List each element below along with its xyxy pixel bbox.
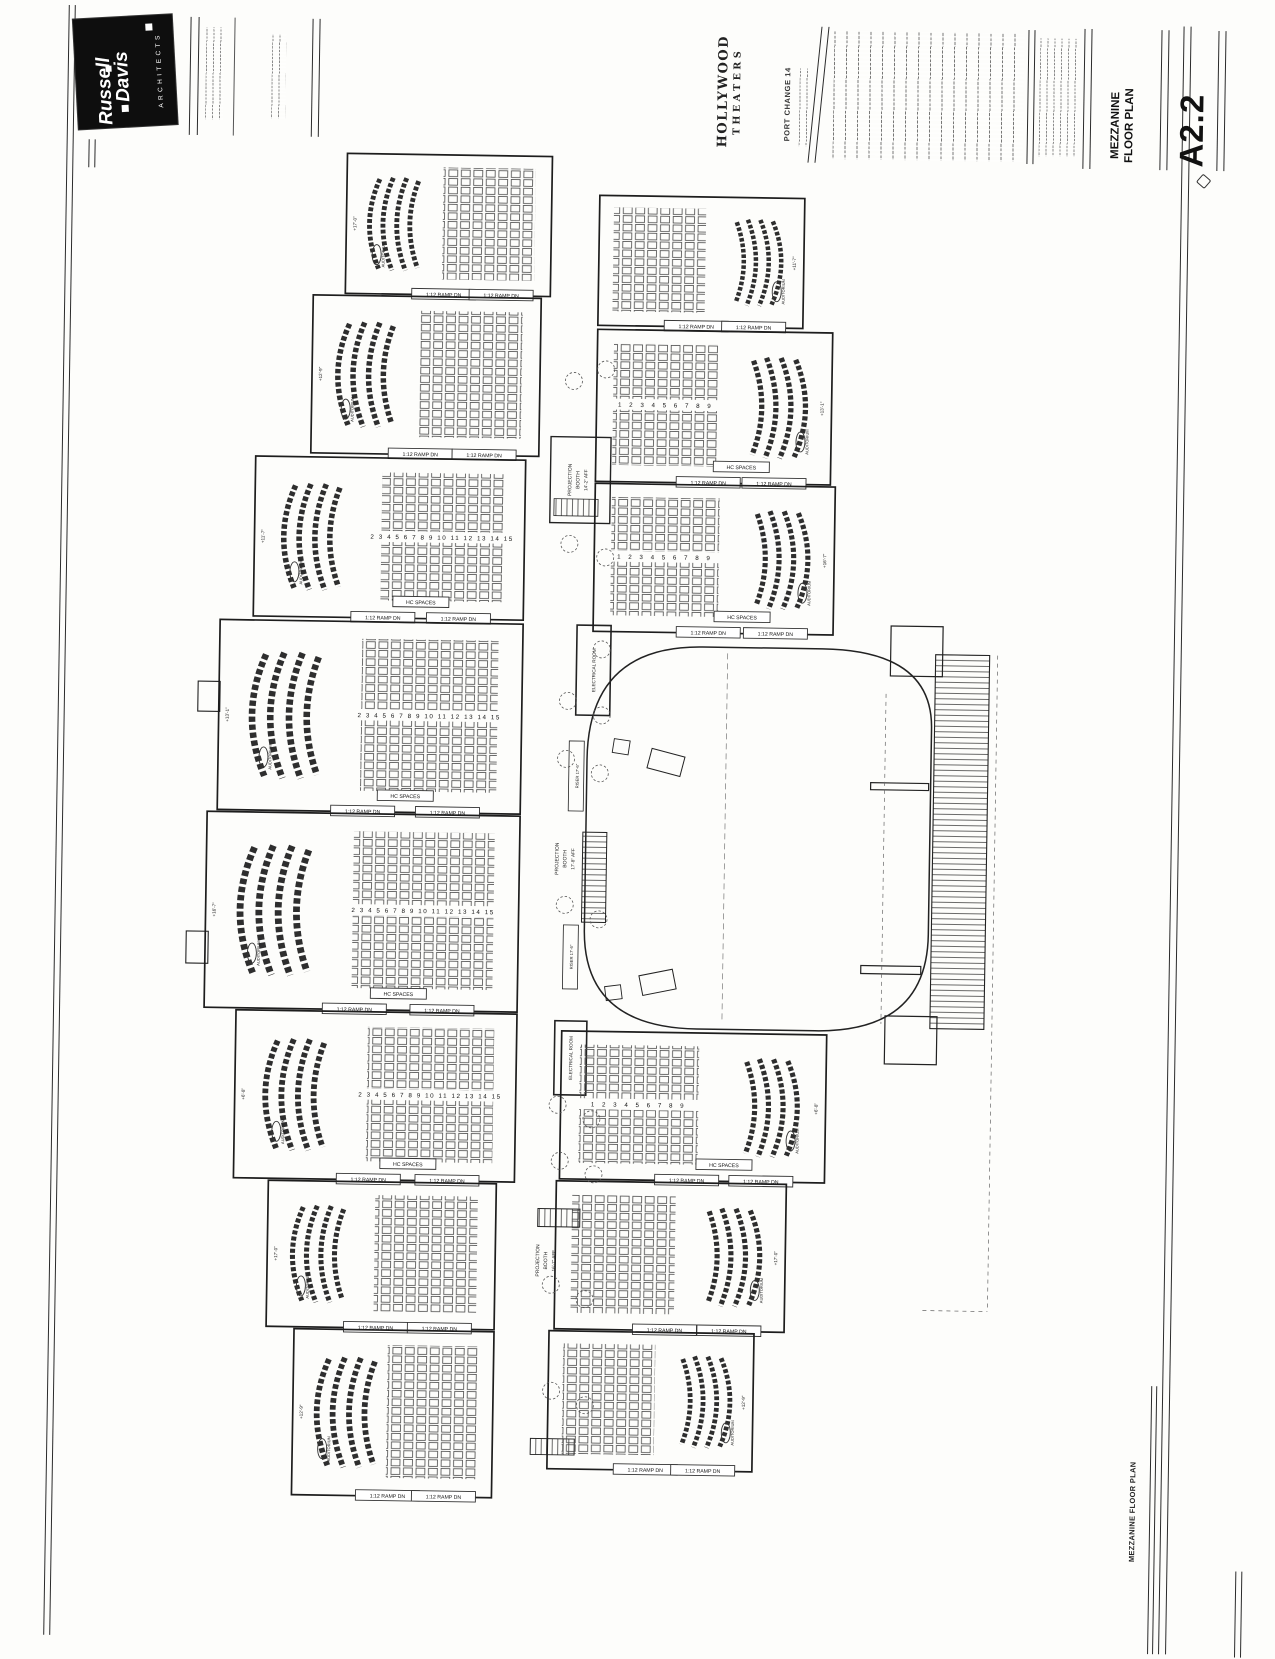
edge-above-line xyxy=(922,1311,987,1312)
drawing-sheet: Russell Davis ARCHITECTS HOLLYWOOD THEAT… xyxy=(0,0,1275,1659)
seat-rows-straight xyxy=(418,311,523,439)
ramp-label: 1:12 RAMP DN xyxy=(655,1174,719,1186)
ramp-label-label: 1:12 RAMP DN xyxy=(758,631,794,638)
ramp-label-label: 1:12 RAMP DN xyxy=(426,1494,462,1501)
elevation-marker: +11'-7" xyxy=(260,529,265,543)
hc-spaces-label-label: HC SPACES xyxy=(393,1162,423,1168)
auditorium-block: 1 2 3 4 5 6 7 8 9AUDITORIUM+6'-8" xyxy=(559,1031,826,1183)
projector-port xyxy=(598,361,615,378)
row-numbers: 1 2 3 4 5 6 7 8 9 xyxy=(618,402,714,411)
booth-label: PROJECTION xyxy=(554,842,561,875)
auditorium-tag-label: AUDITORIUM xyxy=(280,1119,285,1144)
seat-rows-curved xyxy=(264,1039,324,1151)
seat-rows-curved xyxy=(752,358,806,459)
hc-spaces-label-label: HC SPACES xyxy=(390,794,420,800)
side-room xyxy=(884,1016,937,1065)
seat-rows-curved xyxy=(239,845,309,975)
elevation-marker: +12'-9" xyxy=(741,1395,746,1410)
ramp-label: 1:12 RAMP DN xyxy=(671,1465,735,1477)
auditorium-tag-label: AUDITORIUM xyxy=(349,397,354,422)
seat-rows-curved xyxy=(745,1059,798,1157)
elevation-marker: +13'-1" xyxy=(225,707,230,722)
ramp-label: 1:12 RAMP DN xyxy=(676,627,740,639)
floor-plan: PROJECTION BOOTH 14'-2" AFF ELECTRICAL R… xyxy=(0,0,1275,1659)
elevation-marker: +16'-7" xyxy=(212,902,217,917)
auditoriums: AUDITORIUM+17'-0"1:12 RAMP DN1:12 RAMP D… xyxy=(196,151,840,1507)
lobby-kiosk xyxy=(639,969,676,995)
projector-port xyxy=(549,1096,566,1113)
auditorium-tag-label: AUDITORIUM xyxy=(806,581,811,606)
ramp-label-label: 1:12 RAMP DN xyxy=(678,324,714,331)
hc-spaces-label-label: HC SPACES xyxy=(384,992,414,998)
ramp-label-label: 1:12 RAMP DN xyxy=(628,1468,664,1475)
ramp-label-label: 1:12 RAMP DN xyxy=(441,616,477,623)
ramp-label: 1:12 RAMP DN xyxy=(743,628,807,640)
hc-spaces-label: HC SPACES xyxy=(714,611,770,622)
projector-port xyxy=(557,750,574,767)
booth-label: BOOTH xyxy=(575,471,581,489)
auditorium-tag-label: AUDITORIUM xyxy=(794,1128,799,1153)
seat-rows-curved xyxy=(681,1356,730,1448)
booth-elevation: 17'-8" AFF xyxy=(570,848,575,870)
auditorium-block: AUDITORIUM+11'-7" xyxy=(598,195,805,328)
auditorium-block: 2 3 4 5 6 7 8 9 10 11 12 13 14 15AUDITOR… xyxy=(233,1010,517,1182)
booth-label: BOOTH xyxy=(543,1251,549,1269)
grand-stair xyxy=(930,655,990,1030)
seat-rows-straight xyxy=(442,167,536,280)
seat-rows-curved xyxy=(283,484,340,590)
ramp-label: 1:12 RAMP DN xyxy=(407,1322,471,1334)
ramp-label-label: 1:12 RAMP DN xyxy=(370,1493,406,1500)
auditorium-block: AUDITORIUM+17'-0" xyxy=(345,153,552,296)
ramp-label: 1:12 RAMP DN xyxy=(415,1175,479,1187)
seat-rows-curved xyxy=(735,220,781,306)
guardrail xyxy=(871,783,929,791)
auditorium-tag-label: AUDITORIUM xyxy=(804,429,809,454)
seat-rows-curved xyxy=(369,178,419,271)
ramp-label: 1:12 RAMP DN xyxy=(415,807,479,819)
auditorium-block: AUDITORIUM+12'-9" xyxy=(291,1329,494,1498)
ramp-label: 1:12 RAMP DN xyxy=(742,478,806,490)
auditorium-tag-label: AUDITORIUM xyxy=(298,559,303,584)
edge-above-line xyxy=(987,656,997,1312)
ramp-label: 1:12 RAMP DN xyxy=(632,1324,696,1336)
seat-rows-straight xyxy=(612,207,706,312)
stair-hatch xyxy=(554,499,598,517)
elevation-marker: +12'-9" xyxy=(299,1404,304,1419)
seat-rows-curved xyxy=(756,511,809,609)
electrical-room-label: ELECTRICAL ROOM xyxy=(591,648,597,692)
ramp-label: 1:12 RAMP DN xyxy=(343,1321,407,1333)
ramp-label: 1:12 RAMP DN xyxy=(412,288,476,300)
auditorium-tag-label: AUDITORIUM xyxy=(326,1436,331,1461)
ramp-label: 1:12 RAMP DN xyxy=(331,805,395,817)
ramp-label: 1:12 RAMP DN xyxy=(355,1490,419,1502)
ramp-label: 1:12 RAMP DN xyxy=(676,477,740,489)
seat-rows-straight xyxy=(561,1343,655,1455)
seat-rows-curved xyxy=(316,1357,375,1467)
auditorium-block: 2 3 4 5 6 7 8 9 10 11 12 13 14 15AUDITOR… xyxy=(217,619,523,814)
projector-port xyxy=(565,372,582,389)
ramp-label: 1:12 RAMP DN xyxy=(729,1175,793,1187)
auditorium-tag-label: AUDITORIUM xyxy=(267,744,272,769)
seat-rows-straight xyxy=(570,1194,675,1314)
riser-label: RISER 17'-6" xyxy=(569,944,574,969)
ramp-label: 1:12 RAMP DN xyxy=(613,1464,677,1476)
hc-spaces-label-label: HC SPACES xyxy=(726,465,756,471)
projector-port xyxy=(585,1166,602,1183)
hc-spaces-label-label: HC SPACES xyxy=(406,600,436,606)
ramp-label: 1:12 RAMP DN xyxy=(336,1173,400,1185)
hc-spaces-label: HC SPACES xyxy=(393,596,449,607)
auditorium-block: AUDITORIUM+17'-0" xyxy=(554,1181,786,1333)
row-numbers: 1 2 3 4 5 6 7 8 9 xyxy=(617,554,713,563)
auditorium-block: AUDITORIUM+17'-0" xyxy=(266,1180,496,1330)
ramp-label: 1:12 RAMP DN xyxy=(322,1003,386,1015)
auditorium-block: 2 3 4 5 6 7 8 9 10 11 12 13 14 15AUDITOR… xyxy=(204,811,520,1012)
booth-label: BOOTH xyxy=(562,850,568,868)
seat-rows-curved xyxy=(708,1208,761,1306)
exit-vestibule xyxy=(198,681,220,711)
ramp-label: 1:12 RAMP DN xyxy=(410,1004,474,1016)
ramp-label-label: 1:12 RAMP DN xyxy=(466,453,502,460)
row-numbers: 1 2 3 4 5 6 7 8 9 xyxy=(591,1101,687,1110)
elevation-marker: +11'-7" xyxy=(792,256,797,270)
elevation-marker: +6'-8" xyxy=(241,1088,246,1100)
ramp-label-label: 1:12 RAMP DN xyxy=(736,325,772,332)
booth-elevation: 14'-2" AFF xyxy=(583,469,588,491)
auditorium-tag-label: AUDITORIUM xyxy=(781,279,786,304)
lobby-kiosk xyxy=(612,739,630,755)
auditorium-block: 2 3 4 5 6 7 8 9 10 11 12 13 14 15AUDITOR… xyxy=(253,456,525,620)
booth-label: PROJECTION xyxy=(567,463,574,496)
ramp-label-label: 1:12 RAMP DN xyxy=(690,630,726,637)
projector-port xyxy=(542,1382,559,1399)
ramp-label: 1:12 RAMP DN xyxy=(411,1491,475,1503)
projector-port xyxy=(556,896,573,913)
ramp-label: 1:12 RAMP DN xyxy=(469,289,533,301)
seat-rows-curved xyxy=(292,1205,344,1302)
ramp-label-label: 1:12 RAMP DN xyxy=(402,452,438,459)
lobby-wall xyxy=(583,645,933,1032)
hc-spaces-label: HC SPACES xyxy=(370,988,426,999)
guardrail xyxy=(861,966,921,975)
seat-rows-curved xyxy=(251,652,319,778)
auditorium-block: AUDITORIUM+12'-9" xyxy=(547,1331,754,1472)
elevation-marker: +16'-7" xyxy=(822,553,827,568)
projector-port xyxy=(591,765,608,782)
auditorium-tag-label: AUDITORIUM xyxy=(730,1420,735,1445)
projector-port xyxy=(561,535,578,552)
booth-label: PROJECTION xyxy=(535,1244,542,1277)
auditorium-tag-label: AUDITORIUM xyxy=(256,941,261,966)
hc-spaces-label-label: HC SPACES xyxy=(727,615,757,621)
hc-spaces-label: HC SPACES xyxy=(696,1159,752,1170)
centerline xyxy=(722,653,728,1023)
auditorium-tag-label: AUDITORIUM xyxy=(305,1273,310,1298)
seat-rows-straight xyxy=(373,1195,477,1313)
auditorium-block: AUDITORIUM+12'-9" xyxy=(311,295,541,457)
auditorium-tag-label: AUDITORIUM xyxy=(759,1278,764,1303)
elevation-marker: +17'-0" xyxy=(773,1251,778,1266)
elevation-marker: +12'-9" xyxy=(318,366,323,381)
seat-rows-straight xyxy=(386,1345,478,1479)
auditorium-tag-label: AUDITORIUM xyxy=(380,242,385,267)
ramp-label: 1:12 RAMP DN xyxy=(697,1325,761,1337)
hc-spaces-label-label: HC SPACES xyxy=(709,1163,739,1169)
elevation-marker: +6'-8" xyxy=(813,1103,818,1115)
riser-label: RISER 17'-6" xyxy=(575,763,580,788)
projector-port xyxy=(559,692,576,709)
seat-rows-curved xyxy=(337,322,393,427)
elevation-marker: +13'-1" xyxy=(819,401,824,416)
ramp-label-label: 1:12 RAMP DN xyxy=(685,1468,721,1475)
elevation-marker: +17'-0" xyxy=(273,1246,278,1261)
lobby-kiosk xyxy=(647,748,685,776)
projector-port xyxy=(542,1276,559,1293)
electrical-room-label: ELECTRICAL ROOM xyxy=(568,1036,574,1080)
elevation-marker: +17'-0" xyxy=(352,216,357,231)
ramp-label-label: 1:12 RAMP DN xyxy=(365,615,401,622)
hc-spaces-label: HC SPACES xyxy=(377,790,433,801)
hc-spaces-label: HC SPACES xyxy=(713,461,769,472)
hc-spaces-label: HC SPACES xyxy=(380,1158,436,1169)
